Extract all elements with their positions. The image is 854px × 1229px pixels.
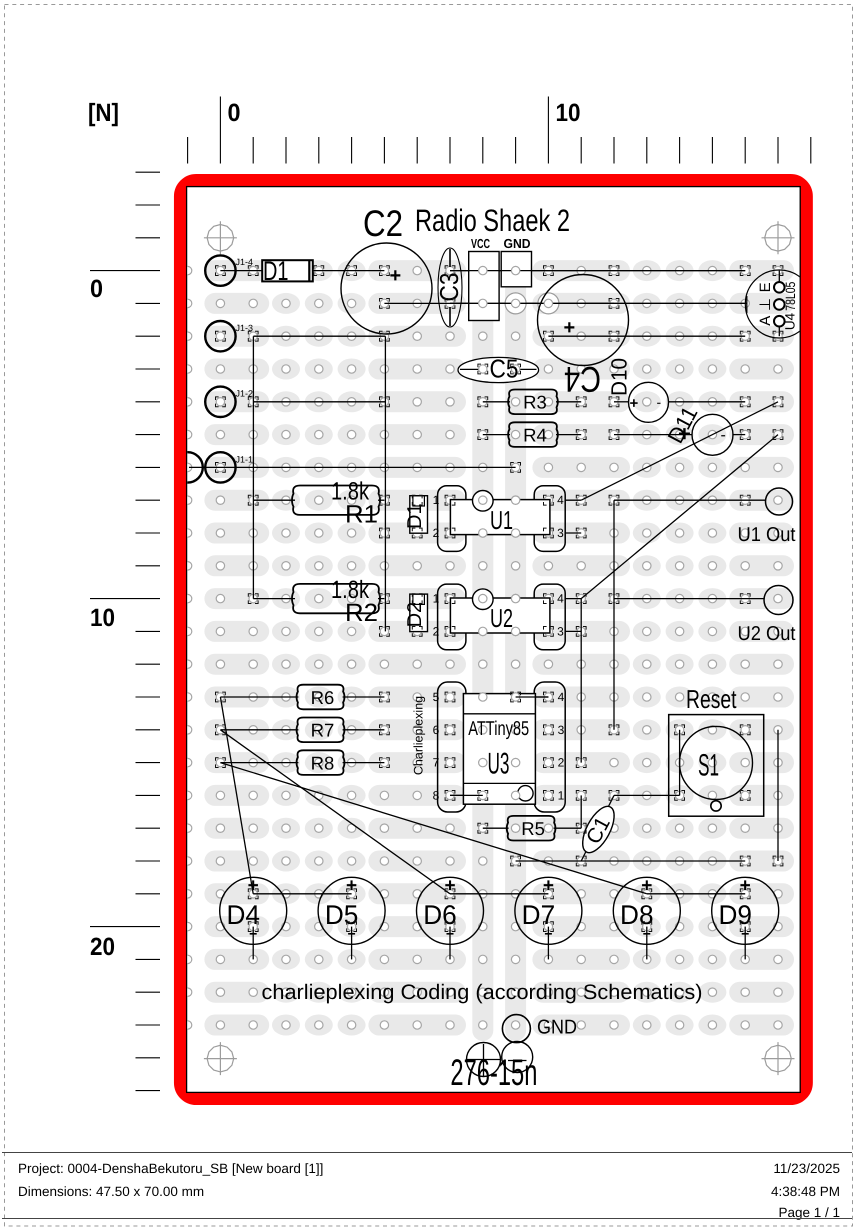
svg-text:GND: GND bbox=[537, 1017, 577, 1039]
svg-text:R5: R5 bbox=[521, 818, 545, 839]
svg-text:7: 7 bbox=[433, 756, 440, 770]
svg-text:[N]: [N] bbox=[88, 99, 119, 127]
svg-text:+: + bbox=[543, 876, 554, 897]
svg-text:J1-1: J1-1 bbox=[236, 455, 254, 465]
svg-text:D1: D1 bbox=[404, 503, 426, 529]
svg-text:-: - bbox=[657, 394, 662, 410]
svg-text:78L05: 78L05 bbox=[783, 282, 798, 311]
svg-text:8: 8 bbox=[433, 788, 440, 802]
svg-text:VCC: VCC bbox=[471, 236, 490, 251]
svg-text:-: - bbox=[721, 427, 726, 444]
svg-text:+: + bbox=[444, 876, 455, 897]
svg-text:20: 20 bbox=[90, 933, 115, 961]
svg-text:D1: D1 bbox=[263, 256, 289, 286]
svg-text:0: 0 bbox=[228, 99, 241, 127]
svg-text:⊥: ⊥ bbox=[757, 298, 774, 311]
svg-text:+: + bbox=[248, 876, 259, 897]
svg-text:U2 Out: U2 Out bbox=[738, 623, 796, 645]
svg-text:S1: S1 bbox=[698, 748, 719, 783]
svg-text:C3: C3 bbox=[434, 273, 464, 302]
svg-text:4:38:48 PM: 4:38:48 PM bbox=[771, 1184, 840, 1199]
svg-text:+: + bbox=[564, 317, 576, 339]
svg-text:2: 2 bbox=[558, 756, 565, 770]
svg-text:3: 3 bbox=[557, 624, 564, 638]
svg-text:R8: R8 bbox=[311, 752, 335, 773]
svg-text:+: + bbox=[390, 265, 402, 287]
svg-text:0: 0 bbox=[90, 275, 103, 303]
svg-text:Charlieplexing: Charlieplexing bbox=[412, 696, 426, 775]
svg-text:+: + bbox=[740, 876, 751, 897]
svg-text:A: A bbox=[757, 316, 774, 326]
svg-text:+: + bbox=[641, 876, 652, 897]
svg-text:Project: 0004-DenshaBekutoru_S: Project: 0004-DenshaBekutoru_SB [New boa… bbox=[18, 1161, 323, 1176]
svg-text:1: 1 bbox=[558, 788, 565, 802]
svg-text:charlieplexing Coding (accordi: charlieplexing Coding (according Schemat… bbox=[262, 981, 703, 1004]
svg-text:U1 Out: U1 Out bbox=[738, 524, 796, 546]
svg-text:5: 5 bbox=[433, 690, 440, 704]
svg-text:2: 2 bbox=[433, 526, 440, 540]
svg-text:D6: D6 bbox=[423, 900, 457, 930]
svg-text:Reset: Reset bbox=[686, 684, 737, 714]
svg-text:D9: D9 bbox=[718, 900, 752, 930]
svg-text:D2: D2 bbox=[404, 602, 426, 628]
svg-text:D8: D8 bbox=[620, 900, 654, 930]
svg-text:6: 6 bbox=[433, 723, 440, 737]
svg-text:3: 3 bbox=[558, 723, 565, 737]
svg-text:ATTiny85: ATTiny85 bbox=[468, 718, 529, 740]
svg-text:E: E bbox=[757, 282, 774, 292]
svg-text:4: 4 bbox=[557, 493, 564, 507]
svg-text:D4: D4 bbox=[226, 900, 260, 930]
svg-text:D5: D5 bbox=[325, 900, 359, 930]
svg-text:Page 1 / 1: Page 1 / 1 bbox=[778, 1205, 840, 1220]
svg-text:D7: D7 bbox=[522, 900, 556, 930]
svg-text:R7: R7 bbox=[311, 720, 335, 741]
svg-text:+: + bbox=[346, 876, 357, 897]
svg-text:R1: R1 bbox=[345, 501, 378, 529]
svg-text:U4: U4 bbox=[783, 312, 798, 330]
svg-text:C5: C5 bbox=[490, 354, 519, 384]
svg-text:U1: U1 bbox=[490, 505, 513, 535]
svg-text:3: 3 bbox=[557, 526, 564, 540]
svg-text:276-15n: 276-15n bbox=[450, 1052, 537, 1093]
svg-text:GND: GND bbox=[504, 236, 531, 251]
svg-text:1: 1 bbox=[433, 493, 440, 507]
svg-text:U2: U2 bbox=[490, 603, 513, 633]
svg-text:R3: R3 bbox=[523, 392, 547, 413]
svg-text:11/23/2025: 11/23/2025 bbox=[773, 1161, 840, 1176]
svg-text:R2: R2 bbox=[345, 599, 378, 627]
svg-text:4: 4 bbox=[558, 690, 565, 704]
svg-text:10: 10 bbox=[90, 604, 115, 632]
svg-text:10: 10 bbox=[556, 99, 581, 127]
svg-text:Dimensions: 47.50 x 70.00 mm: Dimensions: 47.50 x 70.00 mm bbox=[18, 1184, 204, 1199]
svg-text:1: 1 bbox=[433, 592, 440, 606]
svg-text:R4: R4 bbox=[523, 424, 547, 445]
svg-text:+: + bbox=[630, 395, 639, 412]
svg-text:2: 2 bbox=[433, 624, 440, 638]
svg-text:D10: D10 bbox=[607, 358, 632, 396]
svg-text:C4: C4 bbox=[564, 359, 601, 400]
svg-text:4: 4 bbox=[557, 592, 564, 606]
svg-text:C2: C2 bbox=[363, 203, 403, 244]
svg-text:R6: R6 bbox=[311, 687, 335, 708]
svg-text:Radio Shaek 2: Radio Shaek 2 bbox=[415, 203, 570, 238]
svg-text:U3: U3 bbox=[488, 748, 510, 781]
